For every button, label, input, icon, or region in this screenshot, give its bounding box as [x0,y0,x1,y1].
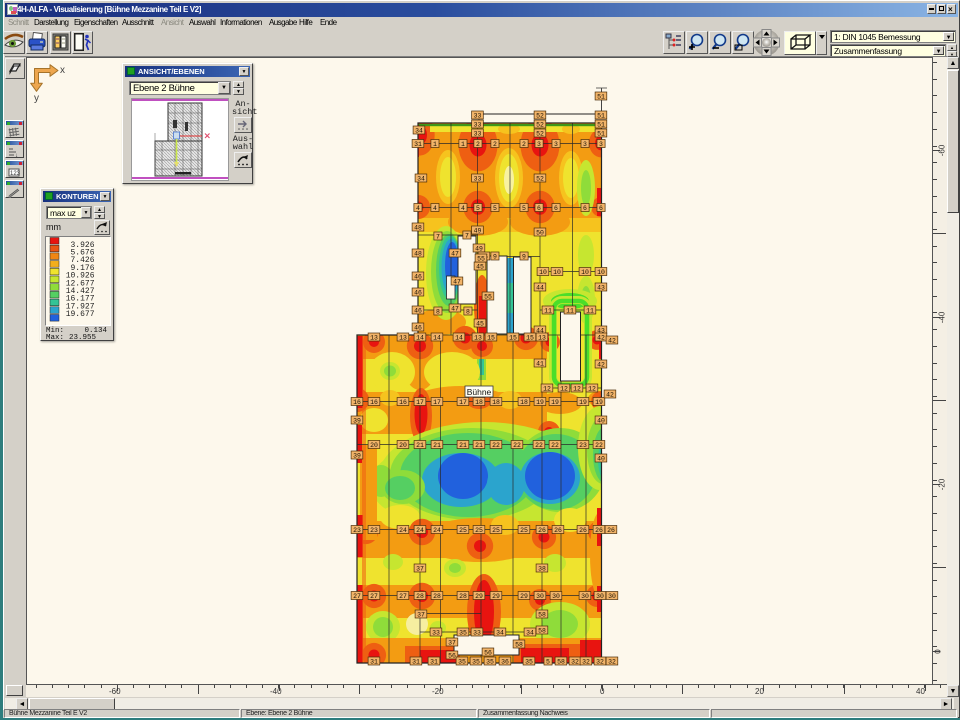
svg-text:3: 3 [554,141,558,148]
svg-text:3: 3 [599,141,603,148]
svg-text:12: 12 [588,386,596,393]
svg-text:35: 35 [458,659,466,666]
svg-text:56: 56 [484,650,492,657]
svg-text:30: 30 [596,593,604,600]
svg-text:8: 8 [466,309,470,316]
svg-text:6: 6 [537,205,541,212]
svg-text:2: 2 [522,141,526,148]
svg-text:37: 37 [417,612,425,619]
svg-text:13: 13 [538,335,546,342]
svg-text:26: 26 [579,527,587,534]
svg-text:8: 8 [436,309,440,316]
svg-text:22: 22 [551,442,559,449]
svg-text:14: 14 [416,335,424,342]
svg-text:14: 14 [455,335,463,342]
svg-text:31: 31 [412,659,420,666]
svg-text:33: 33 [473,630,481,637]
svg-text:1: 1 [433,141,437,148]
svg-text:16: 16 [370,399,378,406]
svg-text:19.677: 19.677 [66,310,95,319]
svg-text:33: 33 [474,131,482,138]
svg-text:51: 51 [597,113,605,120]
svg-text:20: 20 [399,442,407,449]
svg-text:32: 32 [571,659,579,666]
svg-text:4: 4 [433,205,437,212]
svg-text:10: 10 [597,269,605,276]
svg-text:16: 16 [353,399,361,406]
svg-text:26: 26 [554,527,562,534]
svg-text:10: 10 [581,269,589,276]
svg-text:23: 23 [370,527,378,534]
svg-text:55: 55 [484,294,492,301]
svg-text:12: 12 [543,386,551,393]
svg-text:31: 31 [430,659,438,666]
svg-text:35: 35 [459,630,467,637]
svg-text:17: 17 [433,399,441,406]
svg-text:45: 45 [476,264,484,271]
svg-text:5: 5 [546,659,550,666]
svg-text:31: 31 [370,659,378,666]
svg-text:30: 30 [536,593,544,600]
svg-text:52: 52 [536,131,544,138]
svg-text:18: 18 [520,399,528,406]
svg-text:52: 52 [536,122,544,129]
svg-text:15: 15 [526,335,534,342]
svg-text:47: 47 [451,251,459,258]
svg-text:44: 44 [536,285,544,292]
svg-text:28: 28 [433,593,441,600]
svg-text:23: 23 [579,442,587,449]
svg-text:15: 15 [509,335,517,342]
svg-text:21: 21 [416,442,424,449]
svg-text:26: 26 [595,527,603,534]
svg-text:40: 40 [597,456,605,463]
svg-text:46: 46 [414,308,422,315]
svg-text:10: 10 [539,269,547,276]
svg-text:47: 47 [451,306,459,313]
svg-text:7: 7 [436,234,440,241]
svg-text:46: 46 [414,290,422,297]
svg-text:46: 46 [414,325,422,332]
svg-text:30: 30 [608,593,616,600]
svg-text:51: 51 [597,94,605,101]
svg-text:42: 42 [597,335,605,342]
svg-text:28: 28 [459,593,467,600]
svg-text:19: 19 [579,399,587,406]
svg-text:48: 48 [414,251,422,258]
svg-text:43: 43 [597,285,605,292]
svg-text:37: 37 [448,640,456,647]
svg-text:35: 35 [486,659,494,666]
svg-text:13: 13 [399,335,407,342]
svg-text:58: 58 [538,628,546,635]
svg-text:36: 36 [501,659,509,666]
svg-text:29: 29 [520,593,528,600]
svg-text:26: 26 [607,527,615,534]
svg-text:14: 14 [433,335,441,342]
svg-text:7: 7 [465,233,469,240]
svg-text:25: 25 [492,527,500,534]
svg-text:58: 58 [538,612,546,619]
svg-text:31: 31 [414,141,422,148]
svg-text:24: 24 [399,527,407,534]
svg-text:33: 33 [474,176,482,183]
svg-text:32: 32 [596,659,604,666]
svg-text:56: 56 [448,653,456,660]
svg-text:21: 21 [433,442,441,449]
svg-text:42: 42 [606,392,614,399]
svg-text:11: 11 [566,308,574,315]
svg-text:51: 51 [597,122,605,129]
svg-text:42: 42 [597,362,605,369]
svg-text:37: 37 [416,566,424,573]
svg-text:11: 11 [544,308,552,315]
svg-text:22: 22 [492,442,500,449]
svg-text:2: 2 [476,141,480,148]
svg-text:5: 5 [493,205,497,212]
svg-text:25: 25 [520,527,528,534]
svg-text:19: 19 [595,399,603,406]
svg-text:58: 58 [515,642,523,649]
svg-text:4: 4 [416,205,420,212]
svg-text:6: 6 [599,205,603,212]
svg-text:2: 2 [493,141,497,148]
svg-text:5: 5 [522,205,526,212]
svg-text:17: 17 [416,399,424,406]
svg-text:12: 12 [573,386,581,393]
svg-text:34: 34 [526,630,534,637]
svg-text:40: 40 [597,418,605,425]
svg-text:27: 27 [399,593,407,600]
svg-text:15: 15 [487,335,495,342]
svg-text:5: 5 [476,205,480,212]
svg-text:24: 24 [416,527,424,534]
svg-text:41: 41 [536,361,544,368]
svg-text:21: 21 [459,442,467,449]
svg-text:6: 6 [554,205,558,212]
svg-text:50: 50 [536,230,544,237]
svg-text:39: 39 [353,453,361,460]
svg-text:25: 25 [475,527,483,534]
svg-text:33: 33 [474,122,482,129]
svg-text:18: 18 [475,399,483,406]
svg-text:9: 9 [493,254,497,261]
svg-text:39: 39 [353,418,361,425]
svg-text:21: 21 [475,442,483,449]
svg-text:10: 10 [553,269,561,276]
svg-text:22: 22 [595,442,603,449]
svg-text:27: 27 [370,593,378,600]
svg-text:38: 38 [538,566,546,573]
svg-text:45: 45 [476,321,484,328]
svg-text:52: 52 [536,176,544,183]
svg-text:16: 16 [399,399,407,406]
svg-text:Bühne: Bühne [467,387,492,397]
svg-text:12: 12 [560,386,568,393]
svg-text:30: 30 [552,593,560,600]
svg-text:35: 35 [525,659,533,666]
svg-text:34: 34 [496,630,504,637]
svg-text:19: 19 [551,399,559,406]
svg-text:49: 49 [474,228,482,235]
svg-text:25: 25 [459,527,467,534]
svg-text:29: 29 [475,593,483,600]
svg-text:3: 3 [583,141,587,148]
svg-text:35: 35 [472,659,480,666]
svg-text:28: 28 [416,593,424,600]
svg-text:17: 17 [459,399,467,406]
svg-text:19: 19 [536,399,544,406]
svg-text:13: 13 [370,335,378,342]
svg-text:34: 34 [415,128,423,135]
svg-text:49: 49 [475,246,483,253]
svg-text:4: 4 [461,205,465,212]
svg-text:24: 24 [433,527,441,534]
svg-text:46: 46 [414,274,422,281]
svg-text:22: 22 [535,442,543,449]
svg-text:6: 6 [583,205,587,212]
svg-text:29: 29 [492,593,500,600]
svg-text:55: 55 [477,256,485,263]
svg-text:22: 22 [513,442,521,449]
svg-text:27: 27 [353,593,361,600]
svg-text:30: 30 [581,593,589,600]
svg-text:51: 51 [597,131,605,138]
svg-text:23: 23 [353,527,361,534]
svg-text:58: 58 [557,659,565,666]
svg-text:33: 33 [474,113,482,120]
svg-text:52: 52 [536,113,544,120]
svg-text:47: 47 [453,279,461,286]
svg-text:11: 11 [586,308,594,315]
svg-text:3: 3 [537,141,541,148]
svg-text:13: 13 [474,335,482,342]
svg-text:20: 20 [370,442,378,449]
svg-text:18: 18 [492,399,500,406]
svg-text:1: 1 [461,141,465,148]
svg-text:26: 26 [538,527,546,534]
svg-text:32: 32 [582,659,590,666]
svg-text:32: 32 [608,659,616,666]
svg-text:33: 33 [432,630,440,637]
svg-text:9: 9 [522,254,526,261]
svg-text:42: 42 [608,338,616,345]
svg-text:34: 34 [417,176,425,183]
svg-text:48: 48 [414,225,422,232]
